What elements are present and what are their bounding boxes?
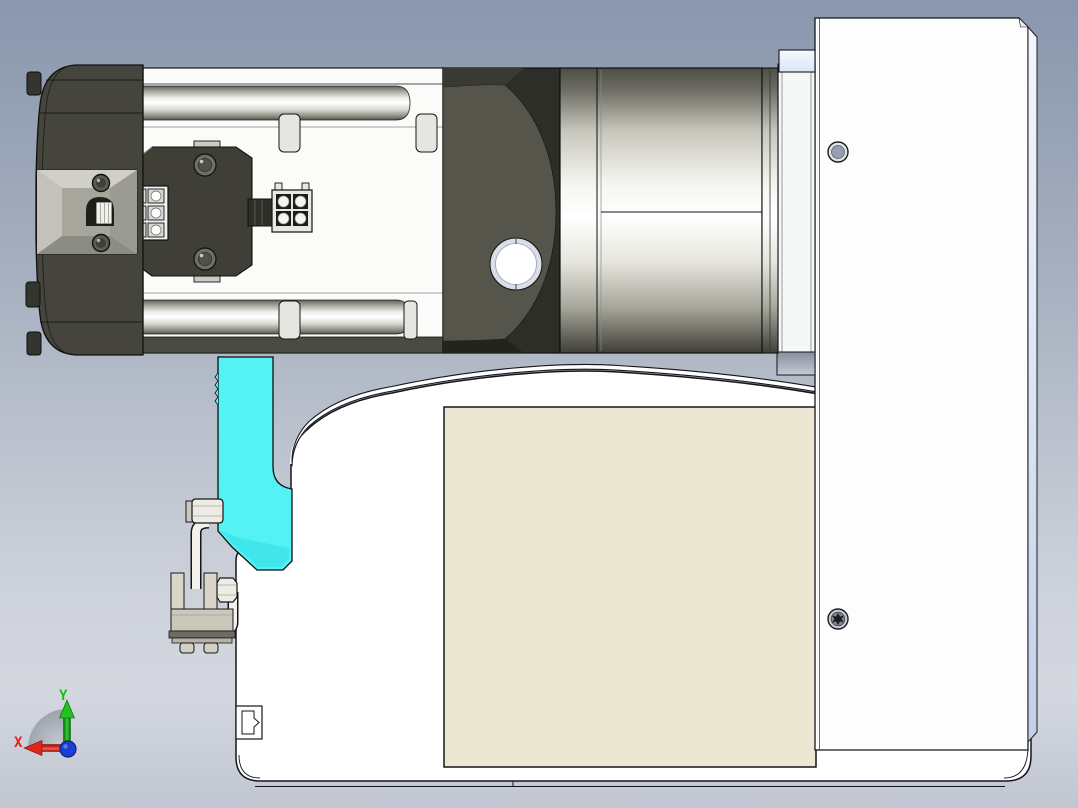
axis-origin-highlight — [63, 744, 67, 748]
shaft-hole — [490, 237, 542, 291]
flange-column[interactable] — [778, 64, 815, 356]
end-cap-connector-boss — [86, 197, 114, 226]
cover-plate[interactable] — [444, 407, 816, 767]
fork-sensor-pin-l — [180, 643, 194, 653]
panel-fastener-top[interactable] — [828, 142, 848, 162]
slot-tab-3 — [279, 301, 300, 339]
flange-cap[interactable] — [779, 50, 815, 72]
slot-tab-2 — [416, 114, 437, 152]
hex-bolt-side[interactable] — [217, 578, 237, 602]
side-panel-corner-fold — [1019, 18, 1028, 27]
fork-sensor-pin-r — [204, 643, 218, 653]
tie-rod-bottom[interactable] — [143, 300, 410, 334]
slot-tab-1 — [279, 114, 300, 152]
servo-motor[interactable] — [26, 65, 778, 355]
encoder-plate-screw-bottom — [194, 248, 216, 270]
tie-rod-top[interactable] — [143, 86, 410, 120]
axis-origin-dot — [60, 741, 76, 757]
gearbox-cylinder[interactable] — [560, 68, 778, 353]
panel-edge-strip — [1028, 27, 1037, 742]
end-cap-lug-1 — [27, 72, 41, 95]
highlighted-part-serration — [215, 373, 218, 405]
mounting-flange[interactable] — [777, 50, 815, 375]
connector-4pin-stem — [248, 199, 274, 226]
encoder-plate-screw-top — [194, 154, 216, 176]
motor-front-block[interactable] — [443, 68, 560, 353]
axis-triad: X Y — [14, 688, 76, 757]
axis-y-label: Y — [59, 688, 68, 704]
end-cap-lug-2 — [26, 282, 40, 307]
highlighted-part[interactable] — [215, 357, 292, 570]
axis-x-label: X — [14, 735, 23, 751]
side-panel-face[interactable] — [815, 18, 1028, 750]
end-cap-lug-3 — [27, 332, 41, 355]
end-cap-screw-bottom — [93, 235, 110, 252]
side-panel[interactable] — [815, 18, 1037, 750]
hex-bolt-top[interactable] — [186, 499, 223, 523]
end-cap-screw-top — [93, 175, 110, 192]
slot-tab-4 — [404, 301, 417, 339]
panel-fastener-bottom[interactable] — [828, 609, 848, 629]
cad-viewport: X Y — [0, 0, 1078, 808]
flange-base[interactable] — [777, 352, 815, 375]
motor-end-cap[interactable] — [26, 65, 143, 355]
model-view: X Y — [0, 0, 1078, 808]
